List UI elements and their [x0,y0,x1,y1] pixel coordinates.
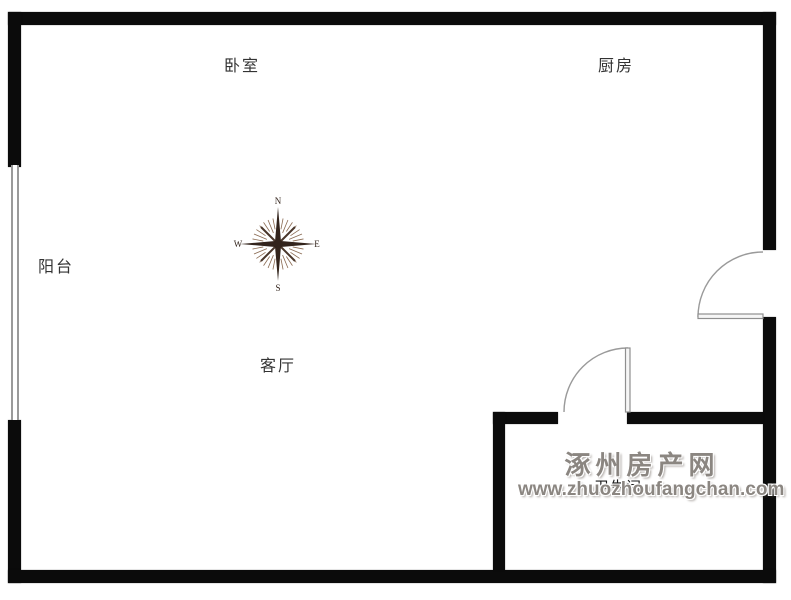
balcony-label: 阳台 [38,253,74,277]
bathroom-door-arc [564,348,628,412]
watermark: 涿州房产网 www.zhuozhoufangchan.com [518,452,766,500]
compass-west-spike [240,241,278,247]
watermark-site-name: 涿州房产网 [518,452,766,479]
compass-s-label: S [275,283,280,293]
compass-n-label: N [275,196,282,206]
compass-east-spike [278,241,316,247]
kitchen-label: 厨房 [598,52,634,76]
compass-rose: N S E W [228,194,328,294]
entry-door-arc [698,252,763,317]
compass-center [275,241,281,247]
door-symbols [0,0,791,600]
floorplan-canvas: N S E W 卧室 厨房 阳台 客厅 卫生间 涿州房产网 www.zhuozh… [0,0,791,600]
living-room-label: 客厅 [260,352,296,376]
watermark-site-url: www.zhuozhoufangchan.com [518,480,766,500]
compass-w-label: W [234,239,243,249]
entry-door-leaf [698,314,763,319]
bedroom-label: 卧室 [224,52,260,76]
compass-e-label: E [314,239,320,249]
compass-north-spike [275,207,281,244]
compass-south-spike [275,244,281,281]
bathroom-door-leaf [626,348,631,412]
